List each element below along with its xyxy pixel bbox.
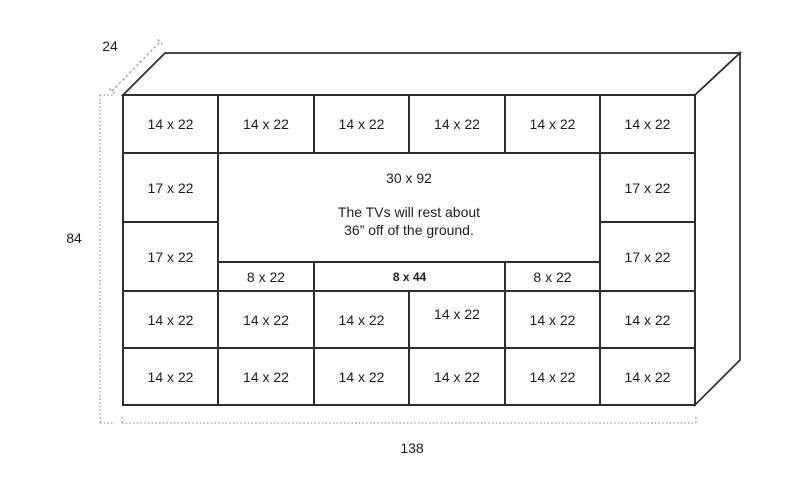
width-dimension-label: 138 — [386, 439, 438, 457]
cabinet-top-face — [123, 53, 740, 95]
bottom-row-cell-4: 14 x 22 — [409, 348, 505, 405]
width-dimension-line — [122, 417, 696, 423]
top-row-cell-1: 14 x 22 — [123, 95, 218, 153]
tv-opening-size-label: 30 x 92 — [218, 169, 600, 187]
right-column-cell-1: 17 x 22 — [600, 153, 695, 222]
fourth-row-cell-2: 14 x 22 — [218, 291, 314, 348]
fourth-row-cell-3: 14 x 22 — [314, 291, 409, 348]
shelf-row-cell-2-label: 8 x 44 — [393, 270, 426, 284]
shelf-row-cell-3: 8 x 22 — [505, 262, 600, 291]
cabinet-right-face — [695, 53, 740, 405]
height-dimension-label: 84 — [58, 229, 90, 247]
tv-opening-note: The TVs will rest about 36” off of the g… — [218, 203, 600, 239]
top-row-cell-4: 14 x 22 — [409, 95, 505, 153]
left-column-cell-1: 17 x 22 — [123, 153, 218, 222]
left-column-cell-2: 17 x 22 — [123, 222, 218, 291]
fourth-row-cell-5: 14 x 22 — [505, 291, 600, 348]
shelf-row-cell-1: 8 x 22 — [218, 262, 314, 291]
fourth-row-cell-4: 14 x 22 — [409, 285, 505, 342]
depth-dimension-label: 24 — [94, 37, 126, 55]
fourth-row-cell-6: 14 x 22 — [600, 291, 695, 348]
bottom-row-cell-6: 14 x 22 — [600, 348, 695, 405]
height-dimension-line — [100, 95, 115, 423]
bottom-row-cell-2: 14 x 22 — [218, 348, 314, 405]
top-row-cell-3: 14 x 22 — [314, 95, 409, 153]
top-row-cell-6: 14 x 22 — [600, 95, 695, 153]
top-row-cell-5: 14 x 22 — [505, 95, 600, 153]
cabinet-cut-diagram: 24 84 138 14 x 22 14 x 22 14 x 22 14 x 2… — [0, 0, 800, 502]
tv-note-line-1: The TVs will rest about — [218, 203, 600, 221]
bottom-row-cell-3: 14 x 22 — [314, 348, 409, 405]
tv-opening-area: 30 x 92 The TVs will rest about 36” off … — [218, 153, 600, 262]
bottom-row-cell-5: 14 x 22 — [505, 348, 600, 405]
right-column-cell-2: 17 x 22 — [600, 222, 695, 291]
tv-note-line-2: 36” off of the ground. — [218, 221, 600, 239]
fourth-row-cell-1: 14 x 22 — [123, 291, 218, 348]
top-row-cell-2: 14 x 22 — [218, 95, 314, 153]
bottom-row-cell-1: 14 x 22 — [123, 348, 218, 405]
